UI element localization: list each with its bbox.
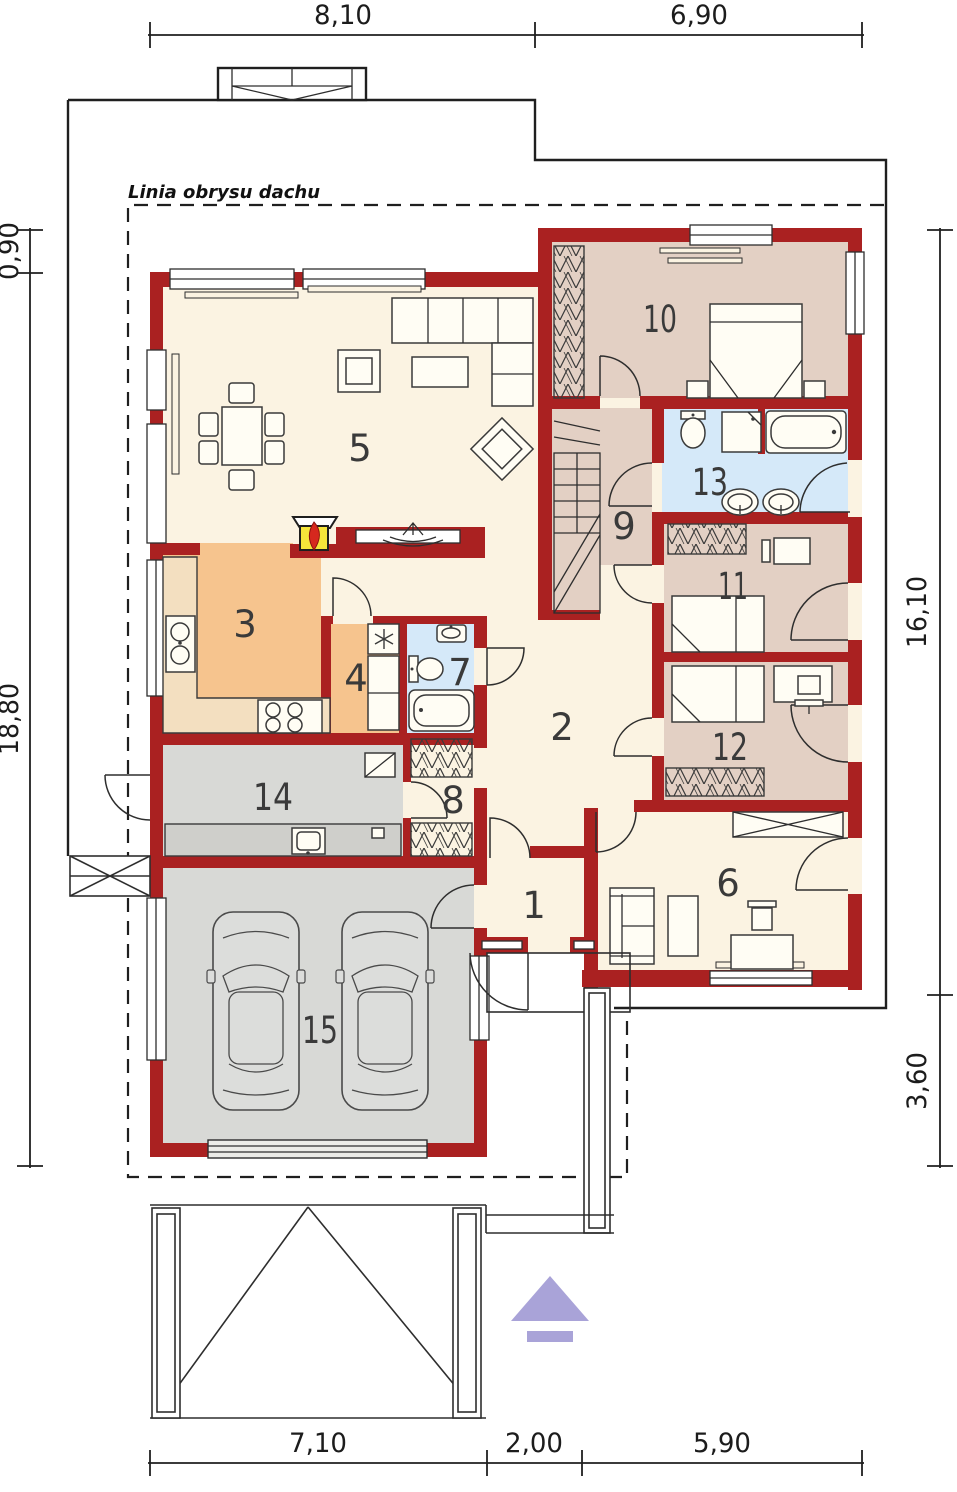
car-icon: [207, 912, 305, 1110]
stove-icon: [258, 700, 322, 733]
dim-right-bottom: 3,60: [902, 1052, 933, 1110]
room-number-15: 15: [302, 1009, 338, 1052]
sink-icon: [437, 625, 466, 642]
bathtub-icon: [409, 690, 474, 731]
toilet-icon: [409, 656, 443, 682]
window-living-left: [147, 350, 166, 543]
room-number-9: 9: [612, 505, 636, 548]
dim-bottom-left: 7,10: [289, 1428, 347, 1459]
desk-icon: [762, 538, 810, 564]
window-garage-left: [147, 898, 166, 1060]
closet-icon: [411, 823, 472, 856]
chimney-icon: [218, 68, 366, 100]
bed-icon: [672, 666, 764, 722]
dim-top: 8,10 6,90: [148, 0, 864, 48]
duct-icon: [365, 753, 395, 777]
entrance-arrow-icon: [511, 1276, 589, 1342]
dim-bottom-right: 5,90: [693, 1428, 751, 1459]
dim-top-right: 6,90: [670, 0, 728, 31]
wardrobe-icon: [668, 524, 746, 554]
dim-left-main: 18,80: [0, 683, 25, 755]
coffee-table-icon: [412, 357, 468, 387]
room-number-10: 10: [643, 298, 677, 341]
floor-plan: 8,10 6,90 7,10 2,00 5,90 0,90 18,80 1: [0, 0, 957, 1492]
window-bedroom10: [690, 225, 772, 245]
soap-tray: [372, 828, 384, 838]
closet-icon: [411, 739, 472, 777]
laundry-sink-icon: [292, 828, 325, 855]
wardrobe-icon: [554, 246, 584, 398]
room-number-3: 3: [233, 603, 257, 646]
garage-door: [208, 1140, 427, 1158]
window-office-bottom: [710, 971, 812, 985]
dim-left: 0,90 18,80: [0, 222, 43, 1168]
wardrobe-icon: [666, 768, 764, 796]
sink-icon: [763, 489, 799, 515]
kitchen-sink-icon: [166, 616, 195, 672]
fridge-icon: [368, 624, 399, 730]
terrace-pillar: [584, 988, 610, 1233]
room-number-7: 7: [448, 651, 472, 694]
dim-top-left: 8,10: [314, 0, 372, 31]
window-bedroom10-right: [846, 252, 864, 334]
roof-outline-label: Linia obrysu dachu: [128, 182, 320, 203]
car-icon: [336, 912, 434, 1110]
room-number-8: 8: [441, 779, 465, 822]
entry-steps: [70, 856, 150, 896]
room-number-14: 14: [253, 776, 293, 819]
room-number-1: 1: [522, 884, 546, 927]
room-number-2: 2: [550, 706, 574, 749]
bathtub-icon: [766, 411, 846, 453]
room-3-floor-pass: [200, 543, 293, 555]
room-number-5: 5: [348, 427, 372, 470]
armchair2-icon: [338, 350, 380, 392]
dim-bottom-mid: 2,00: [505, 1428, 563, 1459]
laundry-counter: [165, 824, 401, 856]
room-number-12: 12: [712, 726, 748, 769]
side-table-icon: [668, 896, 698, 956]
shower-icon: [722, 412, 761, 452]
room-10-floor: [552, 242, 848, 398]
room-number-13: 13: [692, 461, 728, 504]
dim-left-top: 0,90: [0, 222, 25, 280]
wardrobe-x-icon: [733, 812, 843, 837]
room-number-6: 6: [716, 862, 740, 905]
dim-right: 16,10 3,60: [902, 228, 953, 1168]
room-number-4: 4: [344, 657, 368, 700]
floor-plan-svg: 8,10 6,90 7,10 2,00 5,90 0,90 18,80 1: [0, 0, 957, 1492]
window-living-1: [170, 269, 294, 289]
dim-bottom: 7,10 2,00 5,90: [148, 1428, 864, 1476]
dim-right-main: 16,10: [902, 576, 933, 648]
toilet-icon: [681, 411, 705, 448]
room-number-11: 11: [718, 565, 748, 608]
window-entry-right: [574, 941, 594, 949]
window-entry-left: [482, 941, 522, 949]
